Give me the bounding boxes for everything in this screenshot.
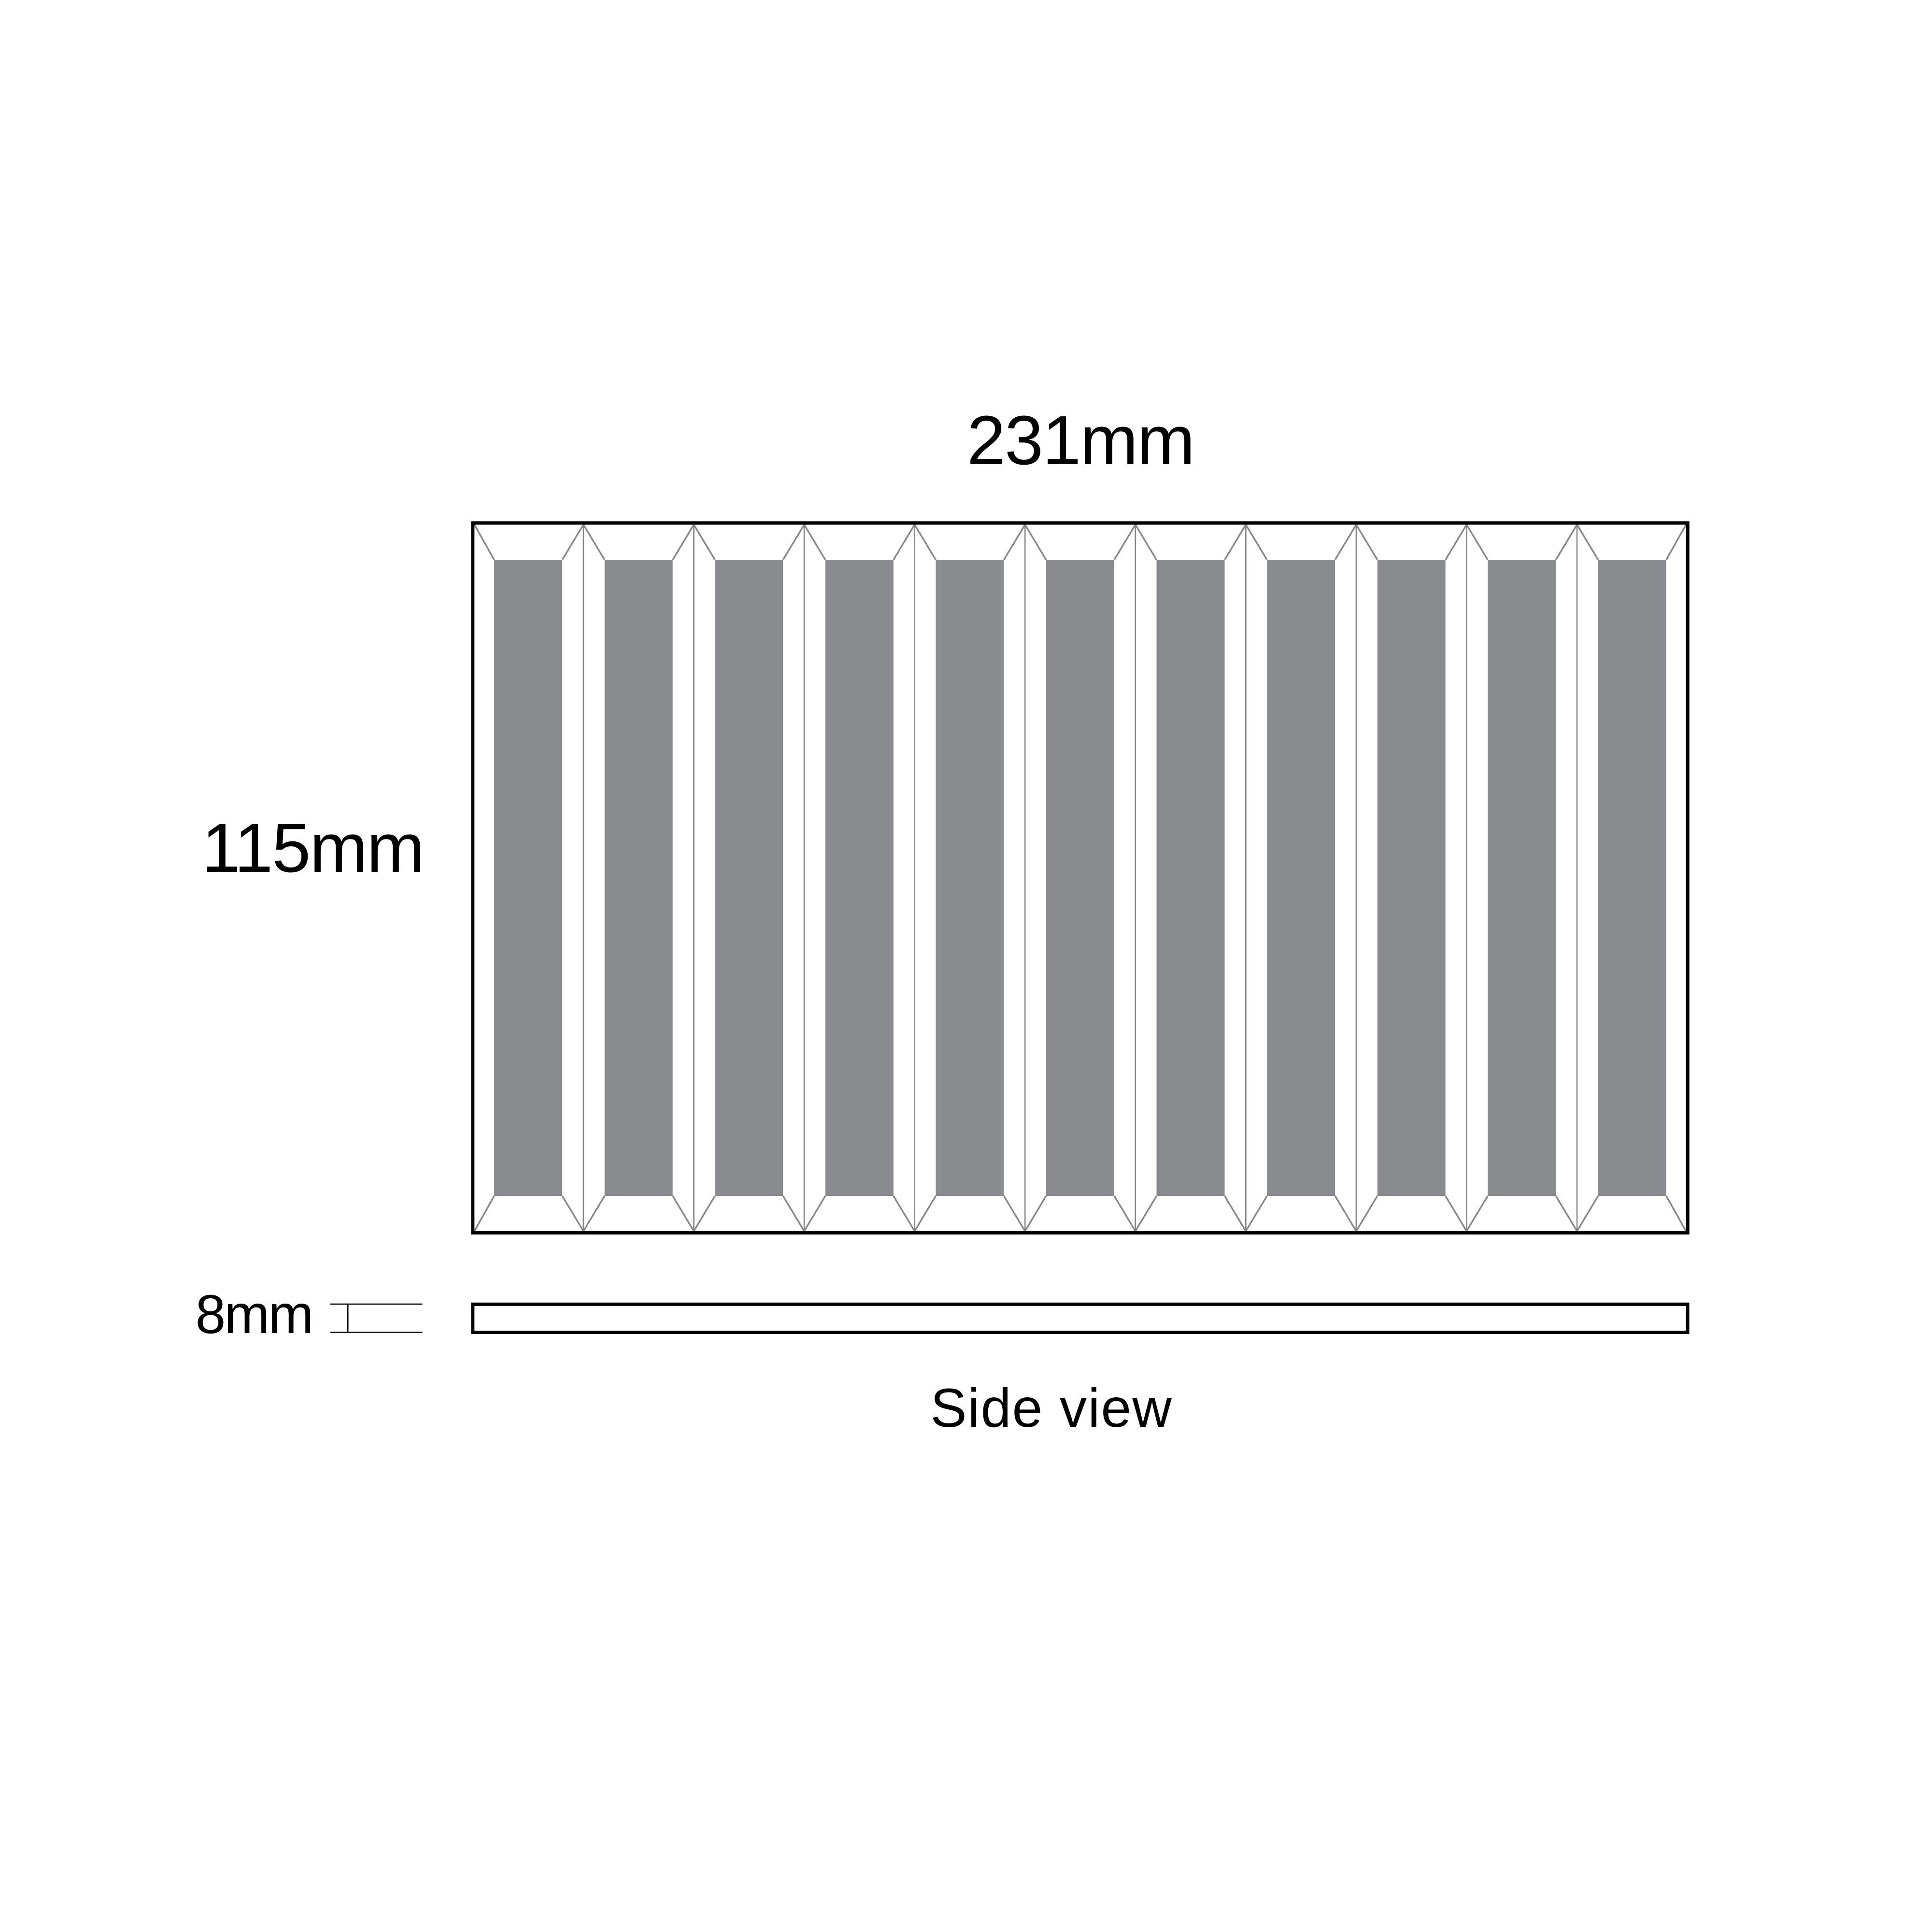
svg-text:8mm: 8mm (195, 1284, 312, 1345)
svg-text:Side view: Side view (930, 1378, 1173, 1438)
svg-text:231mm: 231mm (967, 401, 1194, 479)
svg-text:115mm: 115mm (202, 809, 424, 887)
